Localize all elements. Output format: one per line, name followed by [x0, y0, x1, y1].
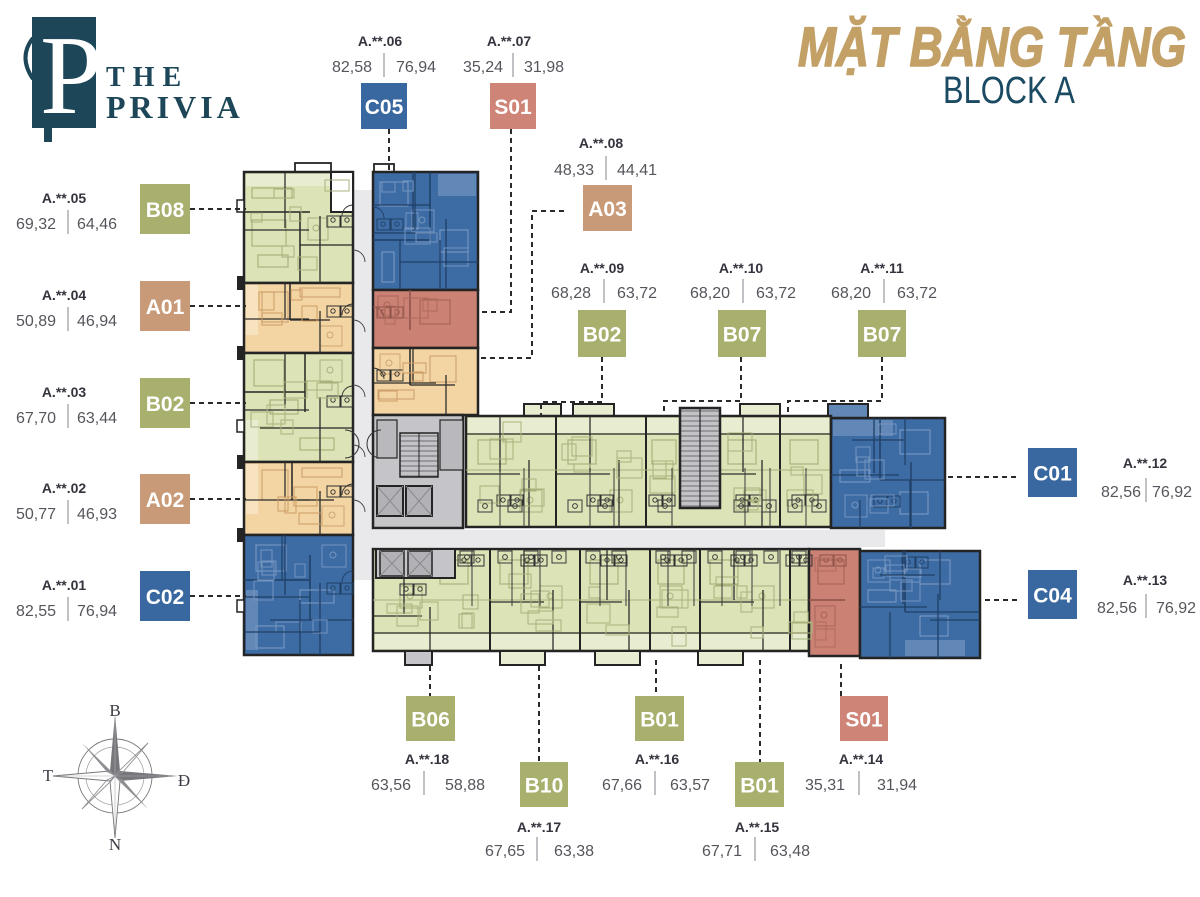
svg-text:35,31: 35,31	[805, 777, 845, 794]
svg-text:C05: C05	[365, 96, 404, 119]
svg-text:76,94: 76,94	[77, 603, 117, 620]
svg-text:63,44: 63,44	[77, 410, 117, 427]
svg-text:76,94: 76,94	[396, 59, 436, 76]
svg-text:S01: S01	[494, 96, 532, 119]
svg-text:69,32: 69,32	[16, 216, 56, 233]
svg-text:68,28: 68,28	[551, 285, 591, 302]
svg-text:B08: B08	[146, 199, 185, 222]
svg-text:67,65: 67,65	[485, 843, 525, 860]
svg-text:35,24: 35,24	[463, 59, 503, 76]
svg-text:A02: A02	[146, 489, 185, 512]
svg-text:64,46: 64,46	[77, 216, 117, 233]
svg-text:A.**.13: A.**.13	[1123, 572, 1168, 588]
svg-text:C01: C01	[1033, 463, 1072, 486]
svg-text:A03: A03	[588, 198, 627, 221]
svg-text:67,71: 67,71	[702, 843, 742, 860]
svg-text:PRIVIA: PRIVIA	[106, 89, 244, 125]
svg-text:31,94: 31,94	[877, 777, 917, 794]
svg-text:BLOCK A: BLOCK A	[943, 70, 1076, 112]
svg-text:A.**.07: A.**.07	[487, 33, 532, 49]
svg-text:63,48: 63,48	[770, 843, 810, 860]
svg-text:48,33: 48,33	[554, 162, 594, 179]
svg-text:44,41: 44,41	[617, 162, 657, 179]
svg-text:N: N	[109, 835, 121, 854]
svg-text:63,72: 63,72	[617, 285, 657, 302]
svg-text:B06: B06	[411, 709, 450, 732]
svg-text:A.**.14: A.**.14	[839, 751, 884, 767]
svg-text:B01: B01	[640, 709, 679, 732]
svg-text:A01: A01	[146, 296, 185, 319]
svg-text:A.**.06: A.**.06	[358, 33, 403, 49]
svg-text:P: P	[40, 14, 102, 138]
svg-text:A.**.09: A.**.09	[580, 260, 625, 276]
svg-text:46,94: 46,94	[77, 313, 117, 330]
svg-text:A.**.17: A.**.17	[517, 819, 562, 835]
svg-text:B07: B07	[723, 324, 762, 347]
svg-text:63,57: 63,57	[670, 777, 710, 794]
svg-text:63,72: 63,72	[756, 285, 796, 302]
svg-text:B02: B02	[146, 393, 185, 416]
svg-text:A.**.10: A.**.10	[719, 260, 764, 276]
svg-text:68,20: 68,20	[831, 285, 871, 302]
svg-text:A.**.03: A.**.03	[42, 384, 87, 400]
svg-text:46,93: 46,93	[77, 506, 117, 523]
svg-text:B02: B02	[583, 324, 622, 347]
svg-text:A.**.04: A.**.04	[42, 287, 87, 303]
svg-text:67,70: 67,70	[16, 410, 56, 427]
svg-text:A.**.05: A.**.05	[42, 190, 87, 206]
svg-text:B01: B01	[740, 775, 779, 798]
svg-text:63,72: 63,72	[897, 285, 937, 302]
svg-text:A.**.08: A.**.08	[579, 135, 624, 151]
svg-text:82,56: 82,56	[1101, 484, 1141, 501]
svg-text:B07: B07	[863, 324, 902, 347]
svg-text:T: T	[43, 766, 54, 785]
svg-text:82,58: 82,58	[332, 59, 372, 76]
svg-text:67,66: 67,66	[602, 777, 642, 794]
svg-text:63,38: 63,38	[554, 843, 594, 860]
svg-text:A.**.18: A.**.18	[405, 751, 450, 767]
svg-text:MẶT BẰNG TẦNG: MẶT BẰNG TẦNG	[798, 15, 1186, 78]
svg-text:63,56: 63,56	[371, 777, 411, 794]
svg-text:50,77: 50,77	[16, 506, 56, 523]
svg-text:76,92: 76,92	[1152, 484, 1192, 501]
svg-text:A.**.12: A.**.12	[1123, 455, 1168, 471]
svg-text:82,56: 82,56	[1097, 600, 1137, 617]
svg-text:A.**.01: A.**.01	[42, 577, 87, 593]
svg-text:A.**.16: A.**.16	[635, 751, 680, 767]
svg-text:A.**.11: A.**.11	[860, 260, 904, 276]
svg-text:31,98: 31,98	[524, 59, 564, 76]
svg-text:76,92: 76,92	[1156, 600, 1196, 617]
svg-text:Đ: Đ	[178, 771, 190, 790]
svg-text:58,88: 58,88	[445, 777, 485, 794]
svg-text:B10: B10	[525, 775, 564, 798]
svg-text:82,55: 82,55	[16, 603, 56, 620]
svg-text:C04: C04	[1033, 585, 1072, 608]
svg-text:B: B	[109, 701, 120, 720]
svg-text:68,20: 68,20	[690, 285, 730, 302]
svg-text:C02: C02	[146, 586, 185, 609]
svg-text:A.**.15: A.**.15	[735, 819, 780, 835]
svg-text:A.**.02: A.**.02	[42, 480, 87, 496]
svg-text:S01: S01	[845, 709, 883, 732]
svg-text:50,89: 50,89	[16, 313, 56, 330]
